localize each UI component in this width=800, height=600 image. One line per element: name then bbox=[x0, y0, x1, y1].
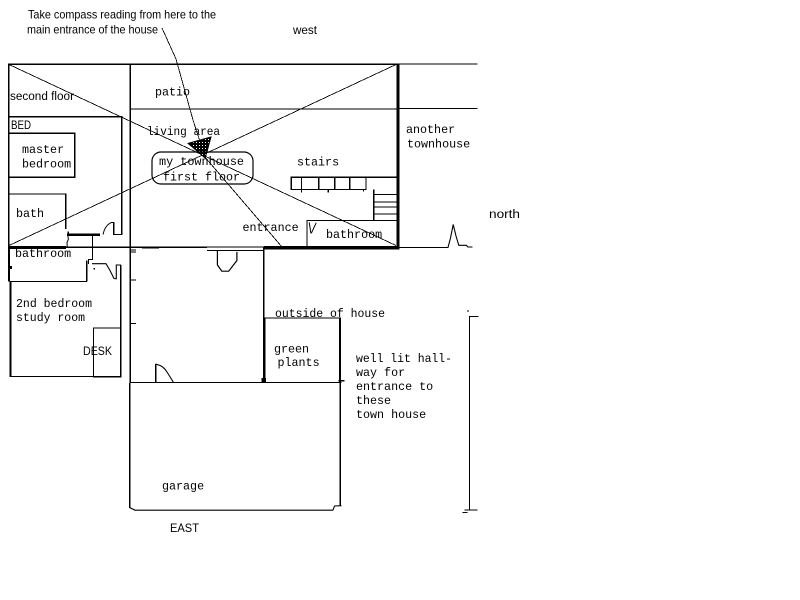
svg-text:townhouse: townhouse bbox=[407, 138, 470, 152]
svg-text:my townhouse: my townhouse bbox=[159, 155, 244, 169]
svg-text:2nd bedroom: 2nd bedroom bbox=[16, 297, 92, 311]
svg-text:plants: plants bbox=[278, 356, 320, 370]
svg-text:green: green bbox=[274, 343, 309, 357]
svg-text:entrance to: entrance to bbox=[356, 380, 433, 394]
svg-text:first floor: first floor bbox=[163, 171, 240, 185]
svg-text:Take compass reading from here: Take compass reading from here to the bbox=[28, 9, 216, 22]
svg-text:well lit hall-: well lit hall- bbox=[356, 352, 452, 366]
svg-text:bathroom: bathroom bbox=[326, 228, 382, 242]
svg-text:patio: patio bbox=[155, 86, 190, 100]
svg-text:west: west bbox=[292, 23, 317, 37]
svg-text:main entrance of the house: main entrance of the house bbox=[27, 24, 158, 37]
svg-text:living area: living area bbox=[147, 125, 220, 139]
svg-text:second floor: second floor bbox=[10, 89, 74, 103]
svg-text:DESK: DESK bbox=[83, 344, 113, 358]
svg-text:bathroom: bathroom bbox=[15, 247, 71, 261]
svg-text:BED: BED bbox=[11, 118, 31, 132]
svg-text:entrance: entrance bbox=[243, 221, 299, 235]
svg-text:stairs: stairs bbox=[297, 156, 339, 170]
svg-text:another: another bbox=[406, 123, 455, 137]
svg-text:bedroom: bedroom bbox=[22, 158, 71, 172]
svg-text:study room: study room bbox=[16, 311, 85, 325]
svg-text:outside of house: outside of house bbox=[275, 307, 385, 321]
svg-text:master: master bbox=[22, 143, 64, 157]
svg-text:bath: bath bbox=[16, 207, 44, 221]
svg-text:town house: town house bbox=[356, 408, 426, 422]
svg-text:EAST: EAST bbox=[170, 521, 199, 535]
svg-text:these: these bbox=[356, 394, 391, 408]
svg-text:way for: way for bbox=[356, 366, 405, 380]
svg-text:garage: garage bbox=[162, 480, 204, 494]
svg-text:north: north bbox=[489, 207, 520, 221]
